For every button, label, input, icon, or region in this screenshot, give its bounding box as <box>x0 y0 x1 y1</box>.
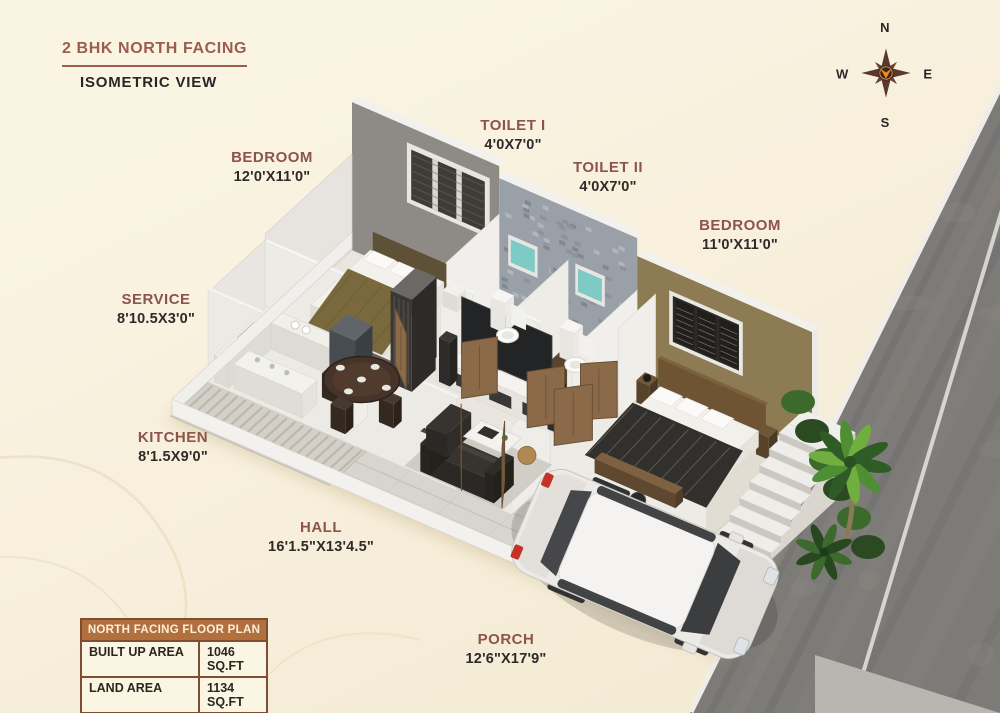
title-block: 2 BHK NORTH FACING ISOMETRIC VIEW <box>62 40 247 91</box>
room-label-bedroom-2: BEDROOM 11'0'X11'0" <box>699 216 781 254</box>
area-info-table: NORTH FACING FLOOR PLAN BUILT UP AREA 10… <box>80 618 268 713</box>
room-name: PORCH <box>466 630 547 650</box>
room-label-kitchen: KITCHEN 8'1.5X9'0" <box>138 428 208 466</box>
compass-east-label: E <box>923 66 932 81</box>
room-name: BEDROOM <box>231 148 313 168</box>
room-name: KITCHEN <box>138 428 208 448</box>
page-subtitle: ISOMETRIC VIEW <box>80 74 247 91</box>
room-label-toilet-2: TOILET II 4'0X7'0" <box>573 158 643 196</box>
table-row-label: BUILT UP AREA <box>82 642 200 676</box>
room-name: TOILET I <box>480 116 545 136</box>
table-row-value: 1046 SQ.FT <box>200 642 266 676</box>
compass-west-label: W <box>836 66 848 81</box>
page-title: 2 BHK NORTH FACING <box>62 40 247 67</box>
room-dims: 12'0'X11'0" <box>231 168 313 187</box>
compass-north-label: N <box>880 20 889 35</box>
table-row-value: 1134 SQ.FT <box>200 678 266 712</box>
room-name: SERVICE <box>117 290 195 310</box>
room-dims: 4'0X7'0" <box>573 178 643 197</box>
room-label-toilet-1: TOILET I 4'0X7'0" <box>480 116 545 154</box>
room-name: TOILET II <box>573 158 643 178</box>
room-dims: 11'0'X11'0" <box>699 236 781 255</box>
room-name: HALL <box>268 518 374 538</box>
room-label-hall: HALL 16'1.5"X13'4.5" <box>268 518 374 556</box>
compass-star-icon <box>858 45 914 101</box>
floor-plan-canvas: 2 BHK NORTH FACING ISOMETRIC VIEW N S W … <box>0 0 1000 713</box>
room-dims: 8'1.5X9'0" <box>138 448 208 467</box>
room-dims: 16'1.5"X13'4.5" <box>268 538 374 557</box>
room-dims: 8'10.5X3'0" <box>117 310 195 329</box>
compass-south-label: S <box>881 115 890 130</box>
table-row-label: LAND AREA <box>82 678 200 712</box>
room-name: BEDROOM <box>699 216 781 236</box>
room-label-porch: PORCH 12'6"X17'9" <box>466 630 547 668</box>
room-dims: 4'0X7'0" <box>480 136 545 155</box>
table-row: LAND AREA 1134 SQ.FT <box>82 676 266 712</box>
table-row: BUILT UP AREA 1046 SQ.FT <box>82 640 266 676</box>
room-label-bedroom-1: BEDROOM 12'0'X11'0" <box>231 148 313 186</box>
room-label-service: SERVICE 8'10.5X3'0" <box>117 290 195 328</box>
compass-rose: N S W E <box>836 20 936 130</box>
table-header: NORTH FACING FLOOR PLAN <box>82 620 266 640</box>
room-dims: 12'6"X17'9" <box>466 650 547 669</box>
